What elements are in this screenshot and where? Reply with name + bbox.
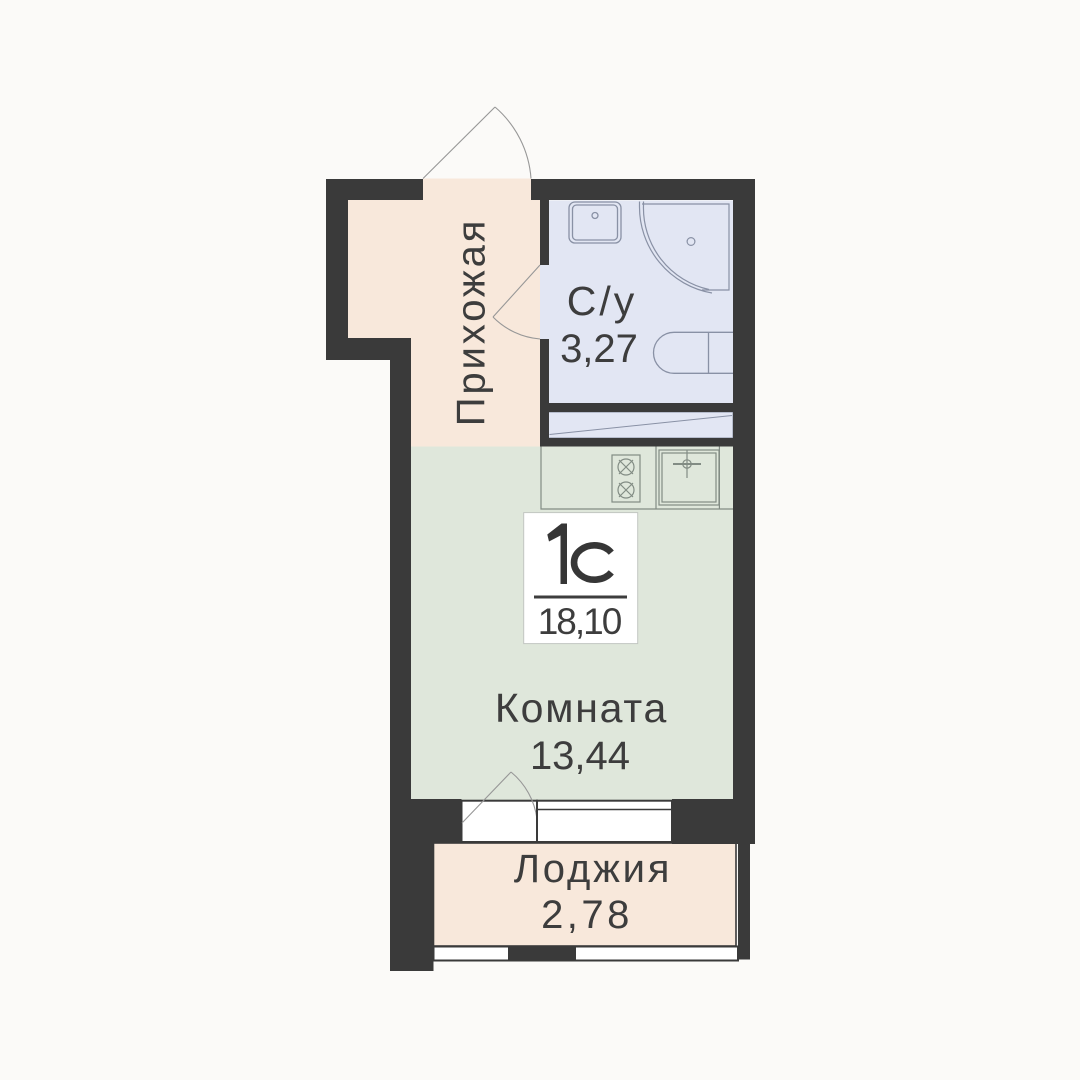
- svg-text:2,78: 2,78: [541, 893, 633, 937]
- svg-text:Лоджия: Лоджия: [514, 847, 673, 891]
- svg-text:13,44: 13,44: [530, 734, 630, 778]
- svg-text:3,27: 3,27: [560, 327, 638, 371]
- svg-text:С/у: С/у: [567, 278, 638, 324]
- svg-text:Прихожая: Прихожая: [450, 218, 494, 427]
- svg-text:Комната: Комната: [495, 685, 668, 731]
- svg-text:18,10: 18,10: [538, 601, 622, 642]
